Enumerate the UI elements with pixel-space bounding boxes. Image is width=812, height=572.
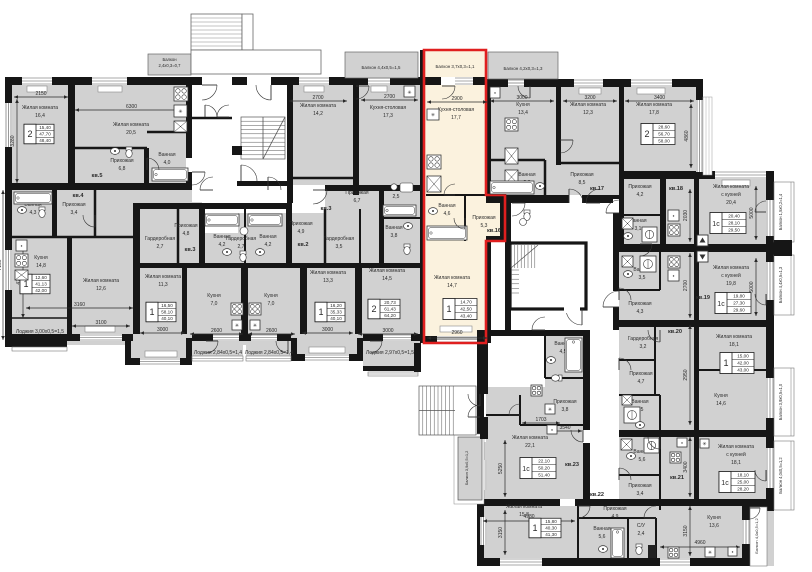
svg-text:3,2: 3,2 — [640, 344, 647, 350]
svg-text:1с: 1с — [522, 466, 530, 473]
svg-text:3,4: 3,4 — [71, 210, 78, 216]
svg-text:кв.19: кв.19 — [696, 295, 710, 301]
svg-text:16,20: 16,20 — [330, 303, 342, 308]
svg-text:Кухня: Кухня — [707, 515, 721, 521]
svg-text:3200: 3200 — [584, 95, 595, 101]
svg-text:3000: 3000 — [322, 327, 333, 333]
svg-text:Ванная: Ванная — [259, 234, 276, 240]
svg-text:20,40: 20,40 — [728, 214, 740, 219]
svg-text:14,6: 14,6 — [716, 401, 726, 407]
svg-text:Жилая комната: Жилая комната — [512, 435, 548, 441]
svg-text:Лоджия 3,00х0,5=1,5: Лоджия 3,00х0,5=1,5 — [16, 329, 64, 335]
svg-text:2030: 2030 — [683, 210, 689, 221]
svg-text:Ванная: Ванная — [631, 399, 648, 405]
svg-text:Ванная: Ванная — [213, 234, 230, 240]
svg-text:Балкон 3,7х0,3=1,1: Балкон 3,7х0,3=1,1 — [435, 64, 475, 69]
svg-text:кв.23: кв.23 — [565, 462, 579, 468]
svg-text:1703: 1703 — [535, 417, 546, 423]
svg-text:✳: ✳ — [235, 323, 239, 329]
svg-text:4,0: 4,0 — [164, 160, 171, 166]
svg-text:2600: 2600 — [266, 328, 277, 334]
svg-text:Прихожая: Прихожая — [289, 221, 312, 227]
svg-text:Прихожая: Прихожая — [629, 371, 652, 377]
svg-text:14,7: 14,7 — [447, 283, 457, 289]
svg-text:кв.3: кв.3 — [321, 206, 332, 212]
svg-text:Прихожая: Прихожая — [110, 158, 133, 164]
svg-text:Жилая комната: Жилая комната — [713, 265, 749, 271]
svg-text:✳: ✳ — [407, 90, 411, 96]
svg-text:1с: 1с — [712, 221, 720, 228]
svg-text:3000: 3000 — [382, 328, 393, 334]
svg-text:✳: ✳ — [431, 113, 435, 119]
svg-text:Жилая комната: Жилая комната — [369, 268, 405, 274]
svg-text:4,6: 4,6 — [444, 211, 451, 217]
svg-text:3000: 3000 — [157, 327, 168, 333]
svg-text:Жилая комната: Жилая комната — [22, 105, 58, 111]
svg-text:56,70: 56,70 — [658, 132, 670, 137]
svg-text:кв.22: кв.22 — [590, 492, 604, 498]
svg-text:Ванная: Ванная — [593, 526, 610, 532]
svg-text:16,50: 16,50 — [161, 303, 173, 308]
svg-text:Жилая комната: Жилая комната — [570, 102, 606, 108]
svg-text:1: 1 — [446, 304, 451, 314]
svg-text:3,5: 3,5 — [336, 244, 343, 250]
svg-text:Кухня: Кухня — [207, 293, 221, 299]
svg-text:3000: 3000 — [516, 95, 527, 101]
svg-text:14,2: 14,2 — [313, 111, 323, 117]
svg-text:Гардеробная: Гардеробная — [628, 336, 659, 342]
svg-text:1: 1 — [532, 523, 537, 533]
svg-text:Гардеробная: Гардеробная — [145, 236, 176, 242]
svg-text:✳: ✳ — [548, 407, 552, 413]
svg-text:3400: 3400 — [654, 95, 665, 101]
svg-text:2,4: 2,4 — [638, 531, 645, 537]
svg-text:27,30: 27,30 — [733, 301, 745, 306]
svg-text:▪: ▪ — [732, 550, 734, 556]
svg-text:кв.2: кв.2 — [298, 242, 309, 248]
svg-text:2,7: 2,7 — [157, 244, 164, 250]
svg-text:14,5: 14,5 — [382, 276, 392, 282]
svg-text:17,8: 17,8 — [649, 110, 659, 116]
svg-text:Жилая комната: Жилая комната — [636, 102, 672, 108]
svg-text:Лоджия 2,84х0,5=1,4: Лоджия 2,84х0,5=1,4 — [194, 350, 242, 356]
svg-text:19,80: 19,80 — [733, 294, 745, 299]
svg-text:1: 1 — [23, 279, 28, 289]
svg-text:✳: ✳ — [178, 109, 182, 115]
svg-text:Балкон 4,4х0,5=1,3: Балкон 4,4х0,5=1,3 — [778, 266, 783, 303]
svg-text:Прихожая: Прихожая — [62, 202, 85, 208]
svg-text:3,8: 3,8 — [562, 407, 569, 413]
svg-text:1с: 1с — [721, 480, 729, 487]
svg-text:С/У: С/У — [637, 523, 646, 529]
svg-text:15,00: 15,00 — [737, 354, 749, 359]
svg-text:кв.4: кв.4 — [73, 193, 85, 199]
svg-text:Жилая комната: Жилая комната — [83, 278, 119, 284]
svg-text:18,1: 18,1 — [729, 342, 739, 348]
svg-text:7150: 7150 — [0, 259, 3, 270]
svg-text:▪: ▪ — [673, 274, 675, 280]
svg-text:Жилая комната: Жилая комната — [145, 274, 181, 280]
svg-text:13,4: 13,4 — [518, 110, 528, 116]
svg-text:3280: 3280 — [10, 135, 16, 146]
svg-text:51,40: 51,40 — [538, 473, 550, 478]
svg-text:4,2: 4,2 — [265, 242, 272, 248]
svg-text:Кухня: Кухня — [264, 293, 278, 299]
svg-text:8,5: 8,5 — [579, 180, 586, 186]
svg-text:Гардеробная: Гардеробная — [324, 236, 355, 242]
svg-text:22,1: 22,1 — [525, 443, 535, 449]
svg-text:5250: 5250 — [498, 463, 504, 474]
svg-text:Жилая комната: Жилая комната — [113, 122, 149, 128]
svg-text:2950: 2950 — [683, 369, 689, 380]
svg-text:42,00: 42,00 — [737, 361, 749, 366]
svg-text:3160: 3160 — [74, 302, 85, 308]
svg-text:43,00: 43,00 — [737, 368, 749, 373]
svg-text:1: 1 — [723, 358, 728, 368]
svg-text:17,7: 17,7 — [451, 115, 461, 121]
svg-text:40,10: 40,10 — [330, 316, 342, 321]
svg-text:18,1: 18,1 — [731, 460, 741, 466]
svg-text:кв.3: кв.3 — [185, 247, 196, 253]
svg-text:2700: 2700 — [384, 94, 395, 100]
svg-text:4,2: 4,2 — [637, 192, 644, 198]
svg-text:2600: 2600 — [211, 328, 222, 334]
svg-text:Балкон 3,9х0,5=1,0: Балкон 3,9х0,5=1,0 — [778, 383, 783, 420]
svg-text:12,6: 12,6 — [96, 286, 106, 292]
svg-text:3,5: 3,5 — [639, 275, 646, 281]
svg-text:✳: ✳ — [702, 442, 706, 448]
svg-text:6,7: 6,7 — [354, 198, 361, 204]
svg-text:Жилая комната: Жилая комната — [300, 103, 336, 109]
svg-text:Ванная: Ванная — [385, 225, 402, 231]
svg-text:2,5: 2,5 — [393, 194, 400, 200]
svg-text:Прихожая: Прихожая — [628, 301, 651, 307]
svg-text:4,7: 4,7 — [638, 379, 645, 385]
svg-text:48,40: 48,40 — [39, 138, 51, 143]
svg-text:4,8: 4,8 — [183, 231, 190, 237]
svg-text:✳: ✳ — [708, 550, 712, 556]
svg-text:6,8: 6,8 — [119, 166, 126, 172]
svg-text:Ванная: Ванная — [518, 172, 535, 178]
svg-text:3400: 3400 — [683, 461, 689, 472]
svg-text:Кухня: Кухня — [34, 255, 48, 261]
svg-text:2: 2 — [644, 129, 649, 139]
svg-text:4,3: 4,3 — [637, 309, 644, 315]
svg-text:29,50: 29,50 — [728, 228, 740, 233]
svg-text:Ванная: Ванная — [438, 203, 455, 209]
svg-text:29,60: 29,60 — [733, 308, 745, 313]
svg-text:3150: 3150 — [683, 525, 689, 536]
svg-text:Прихожая: Прихожая — [628, 483, 651, 489]
svg-text:Балкон 3,9х0,5=1,2: Балкон 3,9х0,5=1,2 — [464, 451, 469, 486]
svg-text:Прихожая: Прихожая — [345, 190, 368, 196]
svg-text:1: 1 — [318, 307, 323, 317]
svg-text:2: 2 — [371, 304, 376, 314]
svg-text:Прихожая: Прихожая — [570, 172, 593, 178]
svg-text:58,10: 58,10 — [161, 309, 173, 314]
svg-text:20,73: 20,73 — [384, 300, 396, 305]
svg-text:7,0: 7,0 — [268, 301, 275, 307]
svg-text:3540: 3540 — [559, 425, 570, 431]
svg-text:Жилая комната: Жилая комната — [506, 504, 542, 510]
svg-text:Прихожая: Прихожая — [628, 184, 651, 190]
svg-text:2960: 2960 — [451, 330, 462, 336]
svg-text:Прихожая: Прихожая — [553, 399, 576, 405]
svg-text:18,10: 18,10 — [737, 473, 749, 478]
svg-text:28,60: 28,60 — [658, 125, 670, 130]
svg-text:3100: 3100 — [95, 320, 106, 326]
svg-text:Балкон 4,4х0,5=1,5: Балкон 4,4х0,5=1,5 — [361, 65, 401, 70]
svg-text:кв.20: кв.20 — [668, 329, 682, 335]
svg-text:Балкон: Балкон — [162, 57, 177, 62]
svg-text:43,40: 43,40 — [460, 314, 472, 319]
svg-text:4,9: 4,9 — [612, 514, 619, 520]
svg-text:Прихожая: Прихожая — [472, 215, 495, 221]
svg-text:Балкон 4,0х0,5=1,2: Балкон 4,0х0,5=1,2 — [778, 457, 783, 494]
svg-text:Ванная: Ванная — [158, 152, 175, 158]
svg-text:▪: ▪ — [494, 91, 496, 97]
svg-text:4960: 4960 — [694, 540, 705, 546]
svg-text:▪: ▪ — [551, 428, 553, 434]
svg-text:4,9: 4,9 — [298, 229, 305, 235]
svg-text:Кухня-столовая: Кухня-столовая — [438, 107, 475, 113]
svg-text:5,6: 5,6 — [599, 534, 606, 540]
svg-text:25,00: 25,00 — [737, 480, 749, 485]
svg-text:40,10: 40,10 — [161, 316, 173, 321]
svg-text:35,33: 35,33 — [330, 309, 342, 314]
svg-text:7,0: 7,0 — [211, 301, 218, 307]
svg-text:1: 1 — [149, 307, 154, 317]
svg-text:64,20: 64,20 — [384, 313, 396, 318]
svg-text:19,8: 19,8 — [726, 281, 736, 287]
svg-text:Кухня: Кухня — [516, 102, 530, 108]
svg-text:58,00: 58,00 — [658, 139, 670, 144]
svg-text:2: 2 — [27, 129, 32, 139]
svg-text:2150: 2150 — [35, 91, 46, 97]
svg-text:2900: 2900 — [451, 96, 462, 102]
svg-text:14,70: 14,70 — [460, 300, 472, 305]
svg-text:с кухней: с кухней — [721, 191, 741, 198]
svg-text:40,30: 40,30 — [545, 525, 557, 530]
svg-text:2,7: 2,7 — [238, 244, 245, 250]
svg-text:кв.16: кв.16 — [487, 228, 501, 234]
svg-text:4,2: 4,2 — [219, 242, 226, 248]
svg-text:12,60: 12,60 — [35, 275, 47, 280]
svg-text:Кухня-столовая: Кухня-столовая — [370, 105, 407, 111]
svg-text:Лоджия 2,97х0,5=1,5: Лоджия 2,97х0,5=1,5 — [366, 350, 414, 356]
svg-text:Балкон 1,5х0,2=1,4: Балкон 1,5х0,2=1,4 — [778, 193, 783, 230]
svg-text:22,10: 22,10 — [538, 459, 550, 464]
svg-text:4,3: 4,3 — [30, 210, 37, 216]
svg-text:11,3: 11,3 — [158, 282, 168, 288]
svg-text:Жилая комната: Жилая комната — [310, 270, 346, 276]
svg-text:3,1: 3,1 — [635, 226, 642, 232]
svg-text:2,4х0,3=0,7: 2,4х0,3=0,7 — [158, 63, 181, 68]
svg-text:13,6: 13,6 — [709, 523, 719, 529]
svg-text:кв.5: кв.5 — [92, 173, 103, 179]
svg-text:14,8: 14,8 — [36, 263, 46, 269]
svg-text:2700: 2700 — [683, 280, 689, 291]
svg-text:20,4: 20,4 — [726, 200, 736, 206]
svg-text:3,8: 3,8 — [391, 233, 398, 239]
svg-text:12,3: 12,3 — [583, 110, 593, 116]
svg-text:▪: ▪ — [681, 441, 683, 447]
svg-text:Жилая комната: Жилая комната — [716, 334, 752, 340]
svg-text:▪: ▪ — [673, 214, 675, 220]
svg-text:Прихожая: Прихожая — [174, 223, 197, 229]
svg-text:2700: 2700 — [312, 95, 323, 101]
svg-text:15,40: 15,40 — [39, 125, 51, 130]
svg-text:✳: ✳ — [253, 323, 257, 329]
svg-text:13,3: 13,3 — [323, 278, 333, 284]
svg-text:3150: 3150 — [498, 527, 504, 538]
svg-text:Жилая комната: Жилая комната — [713, 184, 749, 190]
svg-text:42,00: 42,00 — [35, 288, 47, 293]
svg-text:28,10: 28,10 — [728, 221, 740, 226]
svg-text:Кухня: Кухня — [714, 393, 728, 399]
svg-text:50,20: 50,20 — [538, 466, 550, 471]
svg-text:61,43: 61,43 — [384, 306, 396, 311]
svg-text:Прихожая: Прихожая — [603, 506, 626, 512]
svg-text:кв.21: кв.21 — [670, 475, 684, 481]
svg-text:20,5: 20,5 — [126, 130, 136, 136]
svg-text:5000: 5000 — [749, 281, 755, 292]
svg-text:5000: 5000 — [749, 207, 755, 218]
svg-text:Жилая комната: Жилая комната — [718, 444, 754, 450]
svg-text:41,30: 41,30 — [545, 532, 557, 537]
svg-text:6300: 6300 — [126, 104, 137, 110]
svg-text:Жилая комната: Жилая комната — [434, 275, 470, 281]
svg-text:47,70: 47,70 — [39, 131, 51, 136]
svg-text:с кухней: с кухней — [726, 451, 746, 458]
svg-text:с кухней: с кухней — [721, 272, 741, 279]
svg-text:42,50: 42,50 — [460, 307, 472, 312]
svg-text:17,3: 17,3 — [383, 113, 393, 119]
svg-text:Балкон 4,0х0,5=1,2: Балкон 4,0х0,5=1,2 — [754, 517, 759, 553]
svg-text:4860: 4860 — [684, 130, 690, 141]
svg-text:16,4: 16,4 — [35, 113, 45, 119]
svg-text:1с: 1с — [717, 301, 725, 308]
svg-text:▪: ▪ — [21, 244, 23, 250]
svg-text:Балкон 4,2х0,3=1,3: Балкон 4,2х0,3=1,3 — [503, 66, 543, 71]
svg-text:41,13: 41,13 — [35, 281, 47, 286]
svg-text:28,20: 28,20 — [737, 487, 749, 492]
svg-text:5,6: 5,6 — [639, 457, 646, 463]
svg-text:3,4: 3,4 — [637, 491, 644, 497]
svg-text:кв.18: кв.18 — [669, 186, 683, 192]
svg-text:15,80: 15,80 — [545, 519, 557, 524]
